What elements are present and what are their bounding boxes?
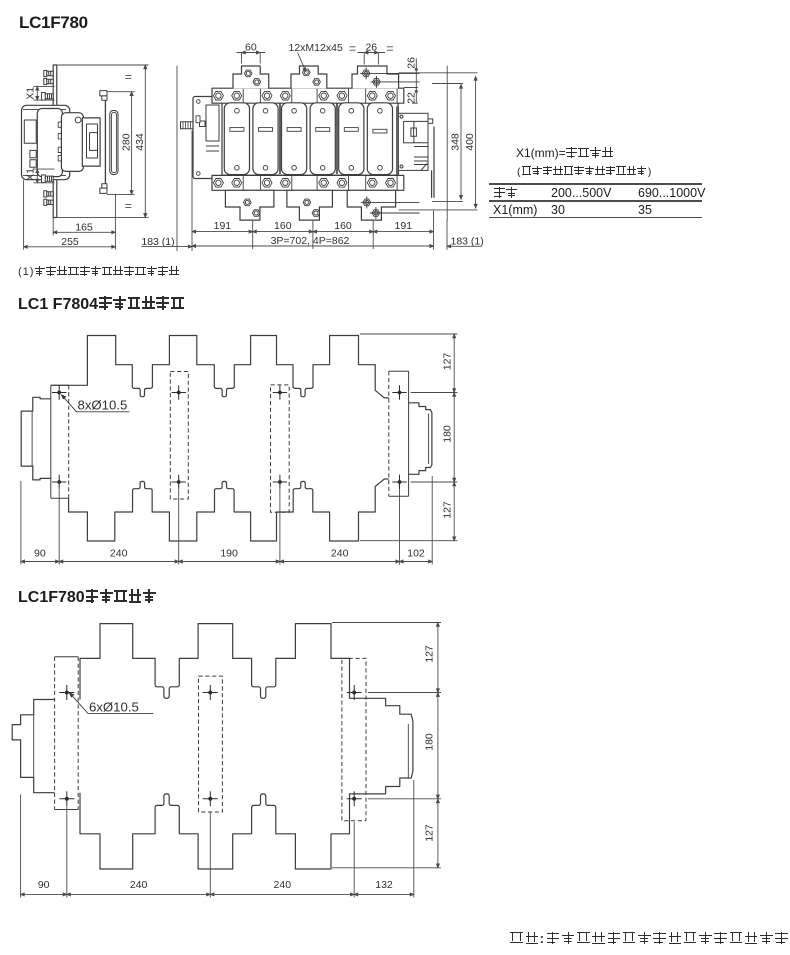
svg-text:132: 132 bbox=[375, 879, 393, 891]
svg-text:180: 180 bbox=[423, 733, 435, 751]
svg-text:90: 90 bbox=[38, 879, 50, 891]
svg-text:191: 191 bbox=[214, 220, 232, 232]
svg-text:6xØ10.5: 6xØ10.5 bbox=[89, 700, 139, 715]
svg-text:8xØ10.5: 8xØ10.5 bbox=[78, 398, 128, 413]
svg-text:348: 348 bbox=[450, 133, 462, 151]
svg-text:127: 127 bbox=[442, 501, 454, 519]
svg-text:190: 190 bbox=[220, 548, 238, 560]
svg-text:240: 240 bbox=[110, 548, 128, 560]
svg-text:60: 60 bbox=[245, 42, 257, 54]
svg-text:90: 90 bbox=[34, 548, 46, 560]
svg-text:434: 434 bbox=[134, 133, 146, 151]
svg-text:12xM12x45: 12xM12x45 bbox=[289, 42, 343, 54]
svg-text:127: 127 bbox=[423, 824, 435, 842]
svg-text:191: 191 bbox=[395, 220, 413, 232]
svg-text:102: 102 bbox=[407, 548, 425, 560]
svg-text:240: 240 bbox=[331, 548, 349, 560]
svg-text:X1: X1 bbox=[25, 168, 37, 181]
svg-text:255: 255 bbox=[61, 236, 79, 248]
svg-text:183 (1): 183 (1) bbox=[141, 236, 174, 248]
svg-text:3P=702, 4P=862: 3P=702, 4P=862 bbox=[271, 235, 350, 247]
svg-text:183 (1): 183 (1) bbox=[451, 235, 484, 247]
svg-text:160: 160 bbox=[274, 220, 292, 232]
svg-text:X1: X1 bbox=[25, 87, 37, 100]
svg-text:22: 22 bbox=[406, 92, 418, 104]
svg-text:400: 400 bbox=[464, 133, 476, 151]
svg-text:280: 280 bbox=[120, 133, 132, 151]
svg-text:240: 240 bbox=[274, 879, 292, 891]
svg-text:240: 240 bbox=[130, 879, 148, 891]
svg-text:180: 180 bbox=[442, 425, 454, 443]
svg-text:127: 127 bbox=[423, 645, 435, 663]
svg-text:26: 26 bbox=[365, 42, 377, 54]
svg-text:160: 160 bbox=[334, 220, 352, 232]
svg-text:165: 165 bbox=[75, 222, 93, 234]
svg-text:127: 127 bbox=[442, 353, 454, 371]
svg-text:26: 26 bbox=[406, 57, 418, 69]
